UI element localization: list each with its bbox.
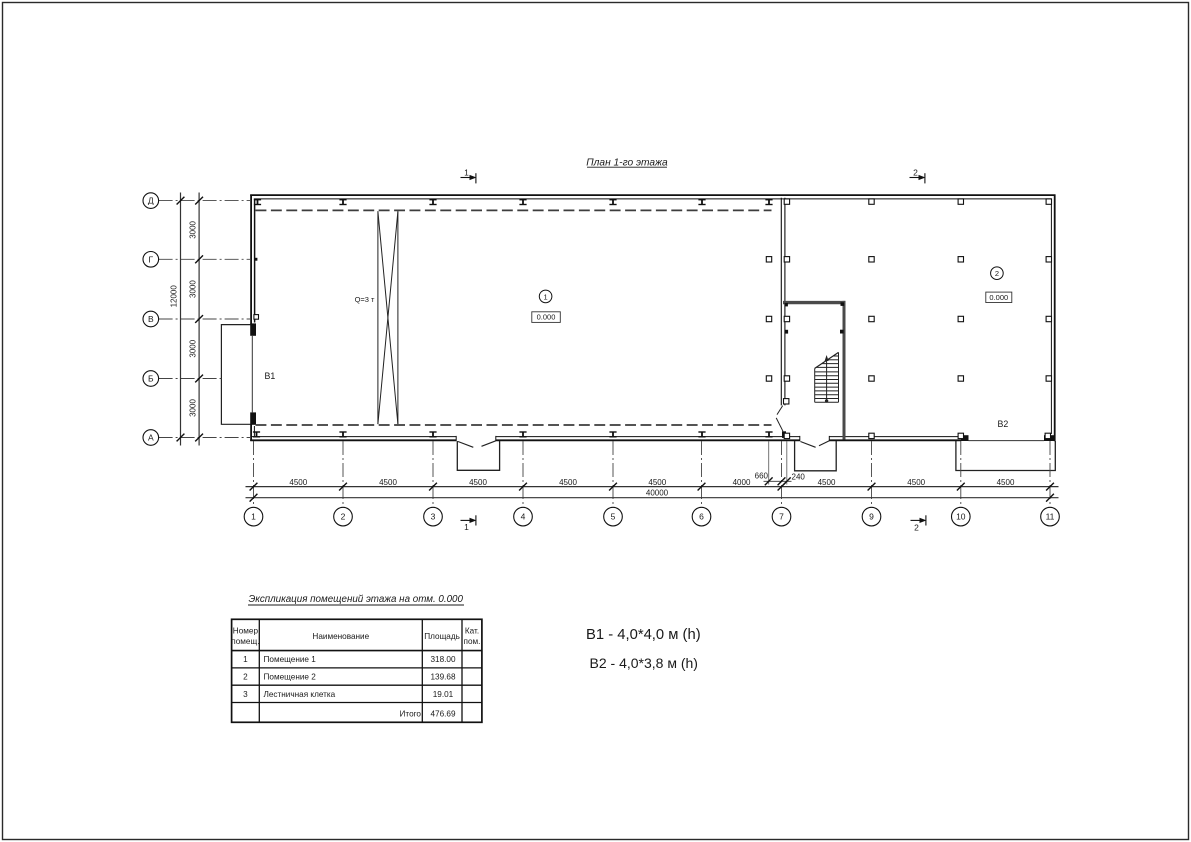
svg-text:В1 - 4,0*4,0 м (h): В1 - 4,0*4,0 м (h) bbox=[586, 627, 701, 643]
svg-text:А: А bbox=[148, 433, 154, 443]
svg-text:4500: 4500 bbox=[379, 478, 397, 487]
svg-text:6: 6 bbox=[699, 512, 704, 522]
svg-text:План 1-го этажа: План 1-го этажа bbox=[586, 157, 668, 168]
svg-text:660: 660 bbox=[755, 471, 769, 480]
svg-text:1: 1 bbox=[464, 168, 469, 178]
svg-text:10: 10 bbox=[956, 512, 966, 522]
svg-text:7: 7 bbox=[779, 512, 784, 522]
svg-text:4: 4 bbox=[521, 512, 526, 522]
svg-text:3: 3 bbox=[243, 690, 248, 699]
svg-text:3000: 3000 bbox=[188, 339, 197, 357]
svg-text:4500: 4500 bbox=[469, 478, 487, 487]
svg-text:4500: 4500 bbox=[907, 478, 925, 487]
svg-text:1: 1 bbox=[544, 292, 548, 301]
svg-text:Номер: Номер bbox=[233, 627, 259, 636]
svg-text:Кат.: Кат. bbox=[465, 627, 479, 636]
svg-text:2: 2 bbox=[913, 168, 918, 178]
svg-text:12000: 12000 bbox=[170, 285, 179, 308]
svg-text:1: 1 bbox=[243, 655, 248, 664]
svg-text:Д: Д bbox=[148, 196, 154, 206]
svg-text:3000: 3000 bbox=[188, 280, 197, 298]
svg-text:4000: 4000 bbox=[733, 478, 751, 487]
svg-text:0.000: 0.000 bbox=[537, 313, 556, 322]
svg-text:Помещение 1: Помещение 1 bbox=[264, 655, 317, 664]
svg-text:4500: 4500 bbox=[559, 478, 577, 487]
svg-text:4500: 4500 bbox=[997, 478, 1015, 487]
svg-text:3000: 3000 bbox=[188, 220, 197, 238]
svg-text:40000: 40000 bbox=[646, 489, 669, 498]
svg-text:В1: В1 bbox=[265, 371, 276, 381]
svg-text:11: 11 bbox=[1046, 512, 1055, 522]
svg-text:В2: В2 bbox=[998, 419, 1009, 429]
svg-text:3000: 3000 bbox=[188, 399, 197, 417]
svg-text:4500: 4500 bbox=[818, 478, 836, 487]
svg-text:2: 2 bbox=[243, 673, 248, 682]
svg-text:2: 2 bbox=[995, 269, 999, 278]
svg-text:4500: 4500 bbox=[648, 478, 666, 487]
svg-text:пом.: пом. bbox=[464, 637, 481, 646]
svg-text:Лестничная клетка: Лестничная клетка bbox=[264, 690, 336, 699]
svg-text:помещ.: помещ. bbox=[231, 637, 259, 646]
svg-text:240: 240 bbox=[792, 473, 806, 482]
svg-text:1: 1 bbox=[464, 522, 469, 532]
svg-text:0.000: 0.000 bbox=[989, 293, 1008, 302]
svg-text:Б: Б bbox=[148, 374, 154, 384]
svg-text:Помещение 2: Помещение 2 bbox=[264, 673, 317, 682]
svg-text:5: 5 bbox=[611, 512, 616, 522]
svg-text:2: 2 bbox=[341, 512, 346, 522]
svg-text:Итого: Итого bbox=[400, 709, 422, 718]
svg-text:3: 3 bbox=[431, 512, 436, 522]
svg-text:19.01: 19.01 bbox=[433, 690, 454, 699]
svg-text:2: 2 bbox=[914, 523, 919, 533]
svg-text:В: В bbox=[148, 314, 154, 324]
svg-text:Г: Г bbox=[148, 254, 153, 264]
svg-text:9: 9 bbox=[869, 512, 874, 522]
svg-text:318.00: 318.00 bbox=[430, 655, 455, 664]
svg-text:4500: 4500 bbox=[289, 478, 307, 487]
svg-text:476.69: 476.69 bbox=[430, 709, 455, 718]
svg-text:139.68: 139.68 bbox=[430, 673, 455, 682]
svg-text:Экспликация помещений этажа на: Экспликация помещений этажа на отм. 0.00… bbox=[249, 594, 464, 605]
svg-text:Площадь: Площадь bbox=[424, 632, 460, 641]
svg-text:В2 - 4,0*3,8 м (h): В2 - 4,0*3,8 м (h) bbox=[590, 655, 698, 671]
svg-text:Наименование: Наименование bbox=[312, 632, 369, 641]
svg-text:1: 1 bbox=[251, 512, 256, 522]
svg-text:Q=3 т: Q=3 т bbox=[355, 295, 375, 304]
